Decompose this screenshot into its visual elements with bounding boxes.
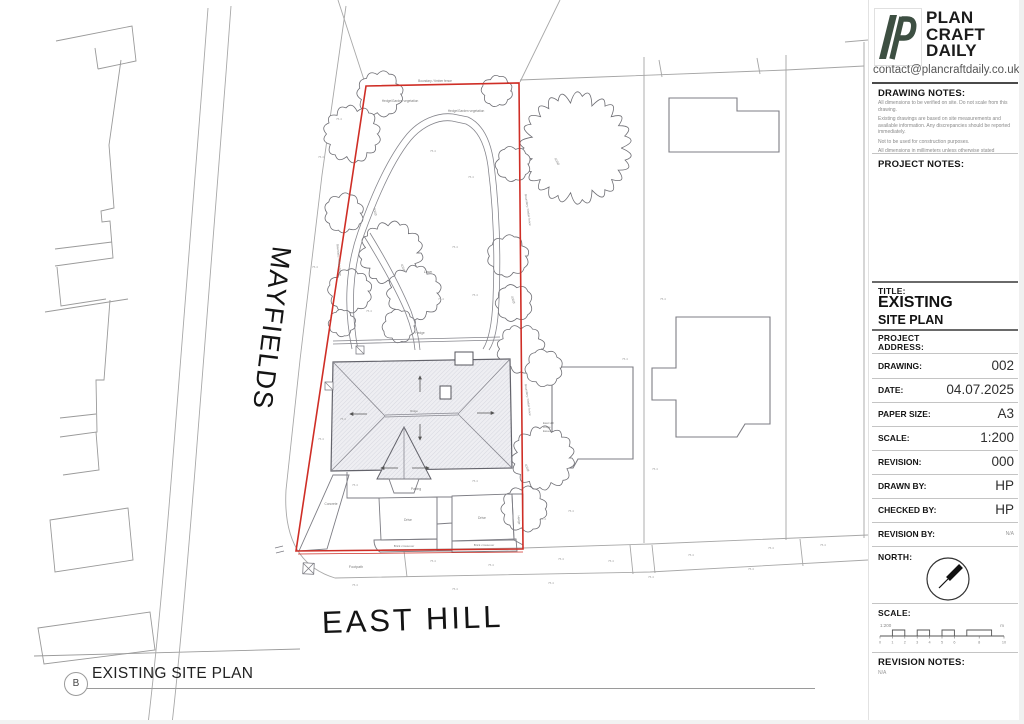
svg-text:75.4: 75.4 bbox=[430, 559, 436, 563]
svg-text:400Ø: 400Ø bbox=[372, 208, 378, 217]
drawing-title-line2: SITE PLAN bbox=[878, 313, 943, 327]
rule bbox=[872, 153, 1018, 154]
field-row-date: DATE: 04.07.2025 bbox=[872, 378, 1018, 402]
svg-text:75.4: 75.4 bbox=[688, 553, 694, 557]
svg-text:6: 6 bbox=[953, 641, 955, 645]
scale-bar: 1:200m0123456810 bbox=[876, 620, 1016, 648]
svg-text:75.4: 75.4 bbox=[468, 175, 474, 179]
field-value: 04.07.2025 bbox=[946, 378, 1014, 402]
svg-text:75.4: 75.4 bbox=[312, 265, 318, 269]
field-value: 1:200 bbox=[980, 426, 1014, 450]
caption-underline bbox=[87, 688, 815, 689]
project-notes-heading: PROJECT NOTES: bbox=[878, 159, 964, 170]
svg-text:75.4: 75.4 bbox=[438, 297, 444, 301]
svg-text:75.4: 75.4 bbox=[648, 575, 654, 579]
note-item: All dimensions to be verified on site. D… bbox=[878, 100, 1016, 113]
brand-name: PLAN CRAFT DAILY bbox=[926, 10, 985, 60]
svg-text:75.4: 75.4 bbox=[472, 293, 478, 297]
logo-box bbox=[874, 8, 922, 66]
plancraftdaily-logo-icon bbox=[875, 9, 919, 63]
project-address-label2: ADDRESS: bbox=[878, 342, 924, 352]
sheet-edge-right bbox=[1019, 0, 1024, 724]
field-row-drawing: DRAWING: 002 bbox=[872, 354, 1018, 378]
crossover-label: Brick crossover bbox=[474, 543, 495, 547]
svg-text:75.4: 75.4 bbox=[452, 245, 458, 249]
svg-text:m: m bbox=[1000, 623, 1004, 628]
field-value: HP bbox=[995, 474, 1014, 498]
svg-text:1:200: 1:200 bbox=[880, 623, 892, 628]
street-label-east-hill: EAST HILL bbox=[321, 599, 504, 640]
svg-text:75.4: 75.4 bbox=[488, 563, 494, 567]
svg-text:8: 8 bbox=[978, 641, 980, 645]
svg-text:0: 0 bbox=[879, 641, 881, 645]
drive-label: Drive bbox=[478, 516, 486, 520]
svg-text:4: 4 bbox=[929, 641, 931, 645]
drawing-title-line1: EXISTING bbox=[878, 294, 953, 312]
svg-text:75.4: 75.4 bbox=[472, 479, 478, 483]
concrete-label: Concrete bbox=[325, 502, 338, 506]
rule bbox=[872, 281, 1018, 283]
field-row-revision: REVISION: 000 bbox=[872, 450, 1018, 474]
svg-text:75.4: 75.4 bbox=[352, 583, 358, 587]
paving-label: Paving bbox=[411, 487, 421, 491]
field-label: DRAWN BY: bbox=[878, 474, 926, 498]
svg-text:75.4: 75.4 bbox=[548, 581, 554, 585]
note-item: Not to be used for construction purposes… bbox=[878, 139, 1016, 146]
field-value: N/A bbox=[1006, 522, 1014, 546]
svg-text:75.4: 75.4 bbox=[452, 587, 458, 591]
field-value: 000 bbox=[991, 450, 1014, 474]
svg-text:75.4: 75.4 bbox=[352, 483, 358, 487]
svg-text:75.4: 75.4 bbox=[568, 509, 574, 513]
svg-text:5: 5 bbox=[941, 641, 943, 645]
svg-text:1: 1 bbox=[891, 641, 893, 645]
field-label: REVISION BY: bbox=[878, 522, 935, 546]
drawing-notes: All dimensions to be verified on site. D… bbox=[878, 100, 1016, 158]
field-row-drawn-by: DRAWN BY: HP bbox=[872, 474, 1018, 498]
svg-text:75.4: 75.4 bbox=[660, 297, 666, 301]
title-block: PLAN CRAFT DAILY contact@plancraftdaily.… bbox=[868, 0, 1024, 724]
drawing-caption: EXISTING SITE PLAN bbox=[92, 665, 253, 683]
svg-text:75.4: 75.4 bbox=[820, 543, 826, 547]
boundary-label: Boundary / timber fence bbox=[418, 79, 452, 83]
lawn-label: Lawn bbox=[424, 270, 433, 274]
scalebar-label: SCALE: bbox=[878, 608, 911, 618]
street-label-mayfields: MAYFIELDS bbox=[247, 245, 297, 412]
north-arrow-icon bbox=[920, 553, 976, 605]
field-row-revision-by: REVISION BY: N/A bbox=[872, 522, 1018, 546]
svg-text:75.4: 75.4 bbox=[430, 149, 436, 153]
field-row-checked-by: CHECKED BY: HP bbox=[872, 498, 1018, 522]
title-block-divider bbox=[868, 0, 869, 724]
field-value: HP bbox=[995, 498, 1014, 522]
hedge-label: Hedge bbox=[415, 331, 425, 335]
sheet-edge-bottom bbox=[0, 720, 1024, 724]
revision-notes-value: N/A bbox=[878, 670, 886, 676]
crossover-label: Brick crossover bbox=[394, 544, 415, 548]
field-value: 002 bbox=[991, 354, 1014, 378]
svg-text:75.4: 75.4 bbox=[318, 437, 324, 441]
vegetation-label: Hedge/Garden vegetation bbox=[448, 109, 485, 113]
drawing-notes-heading: DRAWING NOTES: bbox=[878, 88, 965, 99]
north-label: NORTH: bbox=[878, 552, 912, 562]
svg-text:75.4: 75.4 bbox=[652, 467, 658, 471]
revision-notes-heading: REVISION NOTES: bbox=[878, 657, 965, 668]
field-label: CHECKED BY: bbox=[878, 498, 936, 522]
svg-text:75.4: 75.4 bbox=[336, 117, 342, 121]
field-value: A3 bbox=[997, 402, 1014, 426]
svg-text:75.4: 75.4 bbox=[608, 559, 614, 563]
svg-text:75.4: 75.4 bbox=[558, 557, 564, 561]
drawing-ref-circle: B bbox=[64, 672, 88, 696]
rule bbox=[872, 652, 1018, 653]
svg-text:75.4: 75.4 bbox=[622, 357, 628, 361]
svg-text:75.4: 75.4 bbox=[748, 567, 754, 571]
field-label: REVISION: bbox=[878, 450, 921, 474]
ridge-label: Ridge bbox=[410, 409, 418, 413]
main-house bbox=[325, 346, 512, 493]
svg-text:75.4: 75.4 bbox=[768, 546, 774, 550]
svg-text:10: 10 bbox=[1002, 641, 1006, 645]
rule bbox=[872, 82, 1018, 84]
svg-text:75.4: 75.4 bbox=[340, 417, 346, 421]
field-label: PAPER SIZE: bbox=[878, 402, 931, 426]
svg-text:75.4: 75.4 bbox=[540, 517, 546, 521]
field-row-paper-size: PAPER SIZE: A3 bbox=[872, 402, 1018, 426]
site-plan-canvas: Boundary / timber fence Hedge/Garden veg… bbox=[0, 0, 868, 724]
field-label: DRAWING: bbox=[878, 354, 922, 378]
contact-email: contact@plancraftdaily.co.uk bbox=[873, 64, 1019, 76]
svg-text:75.4: 75.4 bbox=[366, 309, 372, 313]
field-row-scale: SCALE: 1:200 bbox=[872, 426, 1018, 450]
note-item: Existing drawings are based on site meas… bbox=[878, 116, 1016, 136]
rule bbox=[872, 329, 1018, 331]
footpath-label: Footpath bbox=[349, 565, 363, 569]
neighbor-note: Eaves bbox=[543, 429, 552, 433]
hedge-label: Hedge bbox=[517, 515, 522, 524]
vegetation-label: Hedge/Garden vegetation bbox=[382, 99, 419, 103]
boundary-label: Boundary / timber fence bbox=[524, 384, 532, 416]
field-label: DATE: bbox=[878, 378, 903, 402]
field-label: SCALE: bbox=[878, 426, 910, 450]
svg-text:2: 2 bbox=[904, 641, 906, 645]
svg-text:75.4: 75.4 bbox=[318, 155, 324, 159]
svg-text:3: 3 bbox=[916, 641, 918, 645]
drive-label: Drive bbox=[404, 518, 412, 522]
rule bbox=[872, 603, 1018, 604]
rule bbox=[872, 546, 1018, 547]
boundary-label: Boundary / timber fence bbox=[524, 194, 532, 226]
